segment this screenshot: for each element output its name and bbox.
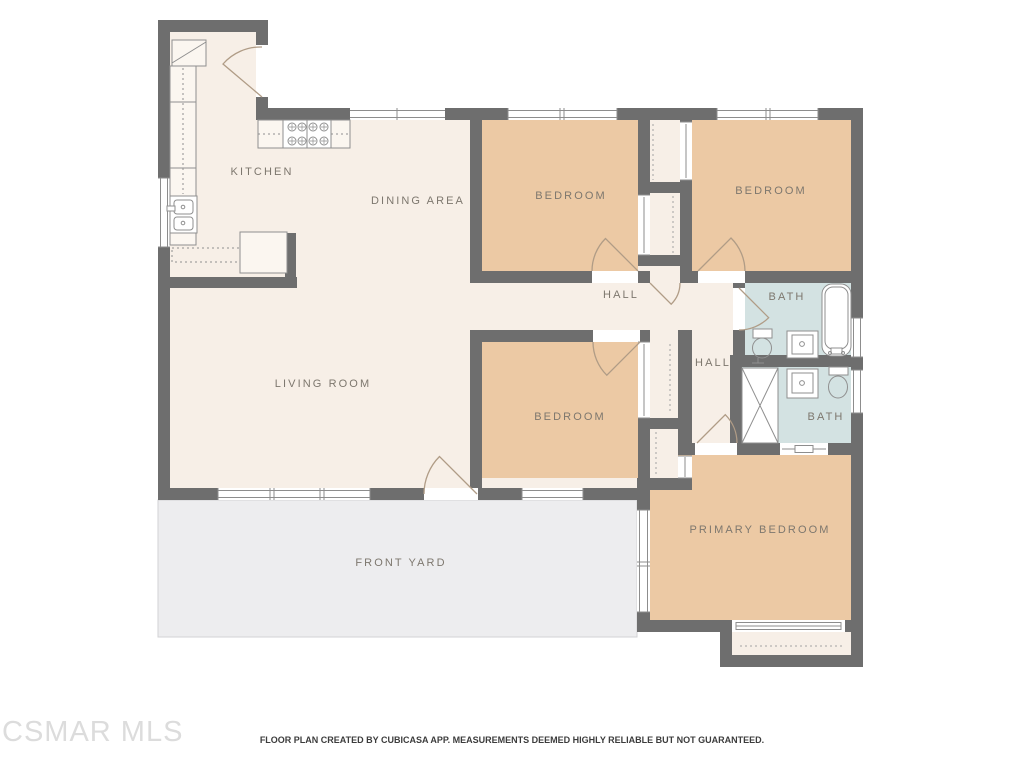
room-label-hall-upper: HALL xyxy=(603,289,639,301)
window-icon xyxy=(717,108,818,120)
window-icon xyxy=(851,318,863,357)
floor-plan-drawing xyxy=(0,0,1024,768)
room-label-bedroom-3: BEDROOM xyxy=(534,411,606,423)
disclaimer-text: FLOOR PLAN CREATED BY CUBICASA APP. MEAS… xyxy=(260,735,764,745)
closet-floor xyxy=(650,429,678,478)
room-label-hall-lower: HALL xyxy=(695,357,731,369)
sliding-door-icon xyxy=(680,122,692,180)
room-label-living-room: LIVING ROOM xyxy=(275,378,371,390)
sliding-door-icon xyxy=(736,623,841,630)
sliding-door-icon xyxy=(638,195,650,255)
room-bedroom-middle xyxy=(482,342,638,478)
room-label-bath-lower: BATH xyxy=(808,411,845,423)
refrigerator-icon xyxy=(172,40,206,66)
stove-icon xyxy=(283,120,331,148)
floor-plan-page: KITCHEN DINING AREA BEDROOM BEDROOM HALL… xyxy=(0,0,1024,768)
window-icon xyxy=(522,488,583,500)
bathtub-icon xyxy=(822,284,851,356)
window-icon xyxy=(218,488,370,500)
vanity-sink-icon xyxy=(787,331,818,358)
sliding-door-icon xyxy=(678,456,692,478)
room-label-kitchen: KITCHEN xyxy=(231,166,294,178)
window-icon xyxy=(158,178,170,247)
room-label-bath-upper: BATH xyxy=(769,291,806,303)
room-label-dining-area: DINING AREA xyxy=(371,195,465,207)
window-icon xyxy=(851,370,863,413)
sliding-door-icon xyxy=(638,342,650,418)
shower-icon xyxy=(742,358,778,443)
room-label-bedroom-1: BEDROOM xyxy=(535,190,607,202)
room-label-front-yard: FRONT YARD xyxy=(355,557,446,569)
window-icon xyxy=(508,108,617,120)
window-icon xyxy=(637,510,650,612)
kitchen-sink-icon xyxy=(167,196,197,233)
room-label-bedroom-2: BEDROOM xyxy=(735,185,807,197)
closet-floor xyxy=(732,632,851,655)
room-label-primary-bedroom: PRIMARY BEDROOM xyxy=(689,524,830,536)
window-icon xyxy=(350,108,445,120)
vanity-sink-icon xyxy=(787,369,818,398)
mls-watermark: CSMAR MLS xyxy=(2,716,183,749)
